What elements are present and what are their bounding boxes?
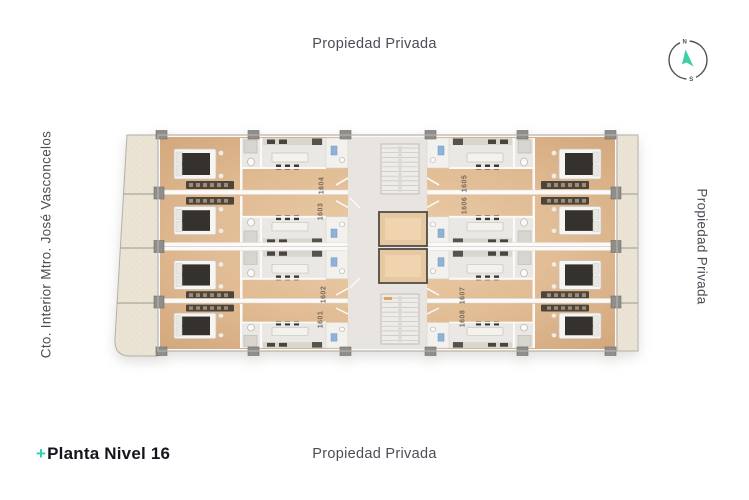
unit-label-1608: 1608	[460, 303, 467, 335]
unit-label-1606: 1606	[462, 190, 469, 222]
label-propiedad-privada-right: Propiedad Privada	[695, 127, 710, 367]
compass-north-label: N	[683, 40, 687, 46]
unit-label-1602: 1602	[321, 279, 328, 311]
core-stairs-bottom	[381, 294, 419, 344]
unit-label-1604: 1604	[319, 170, 326, 202]
compass-south-label: S	[689, 77, 693, 83]
label-propiedad-privada-bottom: Propiedad Privada	[0, 446, 749, 462]
floor-plan-drawing	[100, 128, 645, 368]
label-propiedad-privada-top: Propiedad Privada	[0, 36, 749, 52]
sidewalk-left	[115, 135, 158, 356]
floor-plan: 1601 1602 1603 1604 1605 1606 1607 1608	[100, 128, 645, 368]
compass-icon: N S	[664, 36, 712, 84]
page: Propiedad Privada N S Cto. Interior Mtro…	[0, 0, 749, 500]
label-street-left: Cto. Interior Mtro. José Vasconcelos	[39, 75, 54, 415]
compass-needle-icon	[682, 50, 694, 67]
core-stairs-top	[381, 144, 419, 194]
